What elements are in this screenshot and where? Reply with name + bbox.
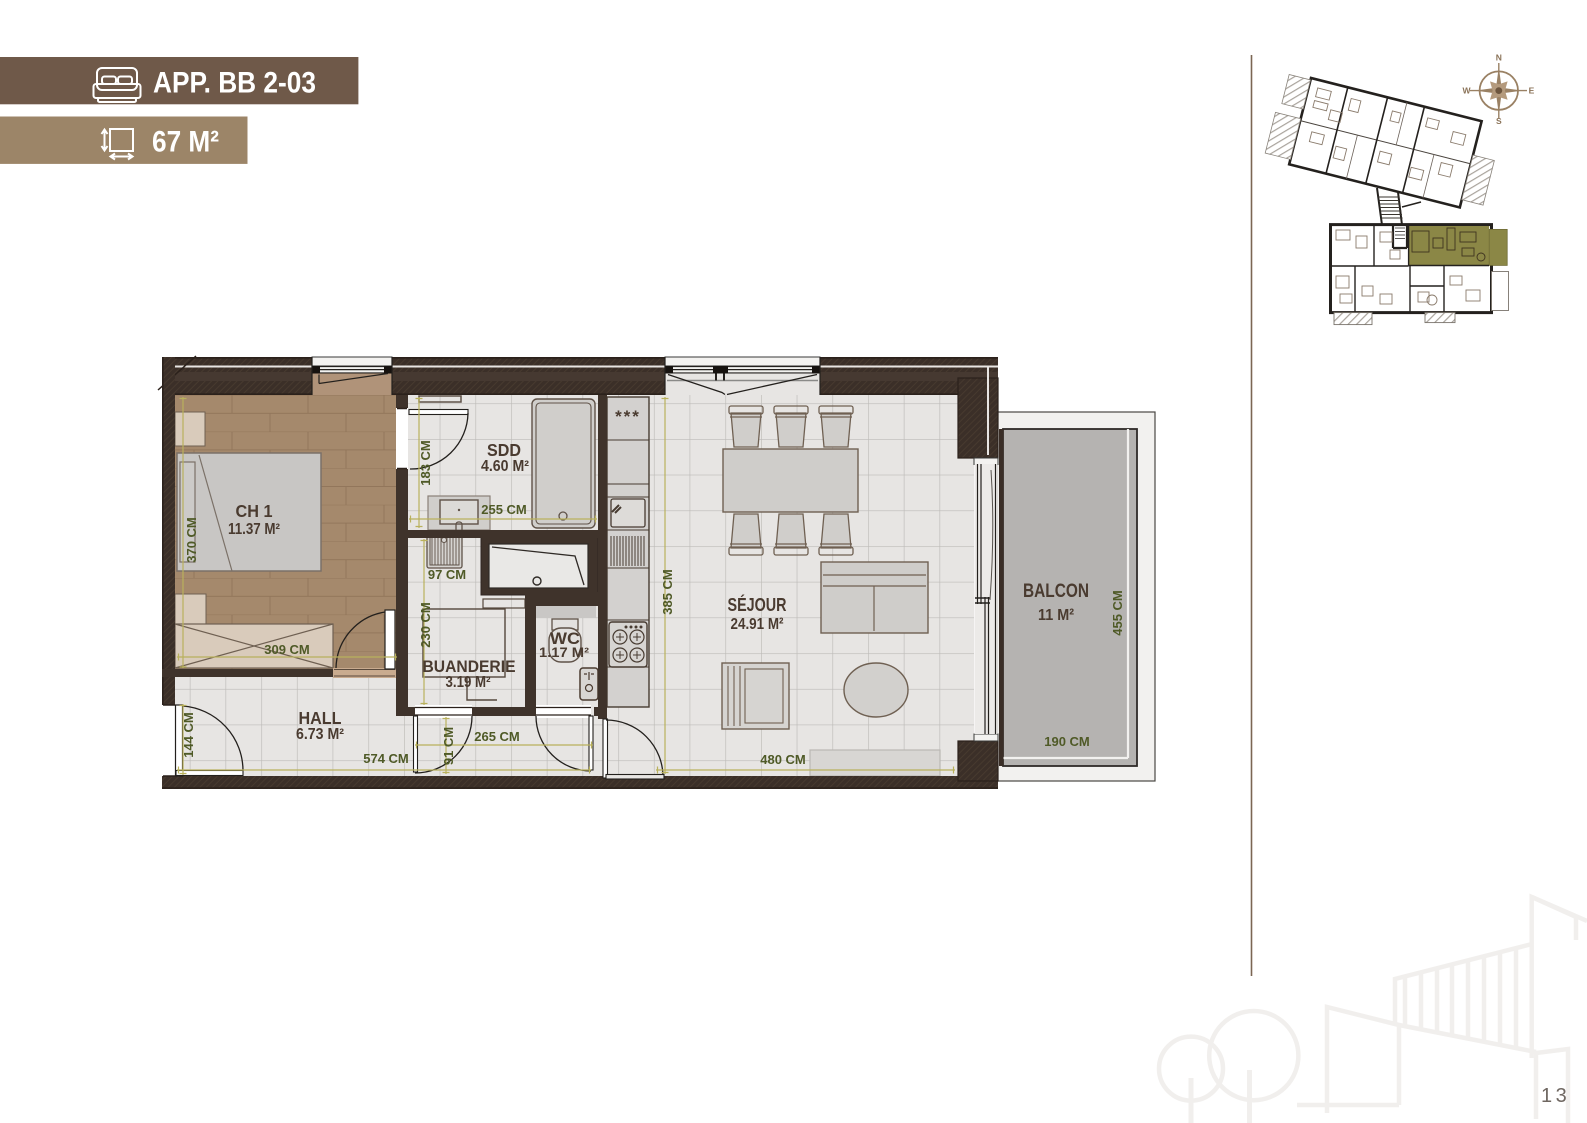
svg-text:190 CM: 190 CM — [1044, 734, 1090, 749]
svg-text:4.60 M²: 4.60 M² — [481, 458, 529, 475]
svg-text:67 M²: 67 M² — [152, 126, 219, 159]
svg-text:309 CM: 309 CM — [264, 642, 310, 657]
svg-text:97 CM: 97 CM — [428, 567, 466, 582]
svg-text:1.17 M²: 1.17 M² — [539, 645, 590, 660]
svg-text:APP. BB 2-03: APP. BB 2-03 — [153, 67, 316, 100]
svg-text:13: 13 — [1541, 1085, 1570, 1107]
svg-text:SDD: SDD — [487, 440, 521, 460]
svg-text:24.91 M²: 24.91 M² — [731, 616, 784, 633]
svg-text:265 CM: 265 CM — [474, 729, 520, 744]
svg-text:W: W — [1462, 86, 1471, 96]
svg-text:***: *** — [615, 407, 641, 426]
svg-text:BALCON: BALCON — [1023, 581, 1089, 602]
svg-text:6.73 M²: 6.73 M² — [296, 726, 344, 743]
svg-text:HALL: HALL — [299, 708, 342, 728]
svg-text:91 CM: 91 CM — [441, 727, 456, 765]
svg-text:230 CM: 230 CM — [418, 602, 433, 648]
svg-text:385 CM: 385 CM — [660, 569, 675, 615]
svg-text:11 M²: 11 M² — [1038, 607, 1074, 624]
svg-text:N: N — [1496, 53, 1502, 63]
svg-text:S: S — [1496, 116, 1502, 126]
svg-text:CH 1: CH 1 — [236, 501, 273, 521]
svg-text:255 CM: 255 CM — [481, 502, 527, 517]
svg-text:144 CM: 144 CM — [181, 712, 196, 758]
svg-text:11.37 M²: 11.37 M² — [228, 521, 280, 538]
svg-text:3.19 M²: 3.19 M² — [446, 674, 491, 691]
svg-text:SÉJOUR: SÉJOUR — [728, 594, 787, 615]
svg-text:455 CM: 455 CM — [1110, 590, 1125, 636]
svg-text:183 CM: 183 CM — [418, 440, 433, 486]
svg-text:370 CM: 370 CM — [184, 517, 199, 563]
svg-text:574 CM: 574 CM — [363, 751, 409, 766]
svg-text:E: E — [1529, 86, 1535, 96]
svg-text:480 CM: 480 CM — [760, 752, 806, 767]
